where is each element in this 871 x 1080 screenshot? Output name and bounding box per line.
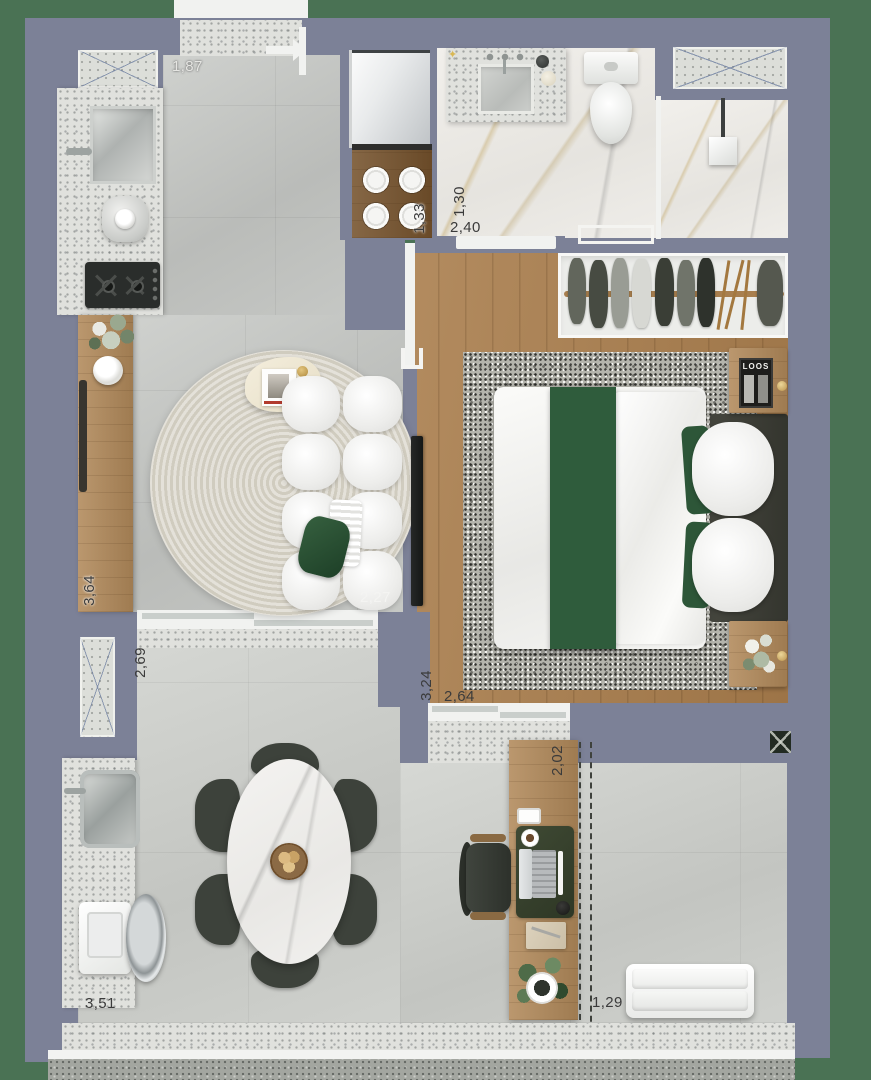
entry-door-leaf-icon — [299, 27, 306, 75]
sofa-cushion — [343, 376, 402, 432]
dim-label: 2,69 — [132, 647, 149, 678]
bed-pillow — [692, 518, 774, 612]
chair-armrest-icon — [470, 912, 506, 920]
shaft-hatch-icon — [80, 637, 115, 737]
window-panel — [500, 712, 566, 718]
bedroom-terrace-door — [428, 703, 570, 721]
burner-icon — [123, 272, 147, 296]
balcony-railing — [48, 1050, 795, 1059]
terrace-faucet-icon — [64, 788, 86, 794]
chair-armrest-icon — [470, 834, 506, 842]
hanging-clothes-icon — [677, 260, 695, 326]
plate-icon — [362, 202, 390, 230]
projection-dashed-line — [579, 742, 581, 1020]
floor-plan: ✦ — [0, 0, 871, 1080]
burner-icon — [92, 270, 120, 298]
door-swing-icon — [401, 348, 423, 369]
balcony-edge-strip — [62, 1023, 795, 1050]
wall-top-bath — [430, 18, 658, 48]
outdoor-walkway — [48, 1059, 795, 1080]
vanity-cup-icon — [541, 71, 556, 86]
terrace-window-sill — [137, 629, 378, 648]
shower-glass-partition — [656, 96, 661, 239]
kitchen-floor — [163, 55, 345, 330]
washer-door-ring-icon — [126, 894, 166, 982]
kitchen-sink — [90, 106, 156, 184]
shaft-hatch-icon — [78, 50, 158, 88]
hanging-clothes-icon — [757, 260, 783, 326]
ac-unit-panel — [632, 991, 748, 1011]
kitchen-faucet-icon — [66, 148, 92, 155]
wall-right-bottom — [787, 763, 830, 1058]
dim-label: 2,27 — [360, 589, 391, 606]
sofa-cushion — [282, 434, 340, 490]
wall-kitchen-hall — [345, 238, 405, 330]
hanging-clothes-icon — [611, 258, 629, 328]
laptop-screen — [519, 849, 532, 899]
cooktop — [85, 262, 160, 308]
hanging-clothes-icon — [568, 258, 586, 324]
coffee-cup-icon — [521, 829, 539, 847]
pen-icon — [558, 851, 563, 895]
dim-label: 3,64 — [81, 575, 98, 606]
bed-runner-green — [550, 387, 616, 649]
tv — [411, 436, 423, 606]
coffee-cup-icon — [115, 209, 135, 229]
plate-icon — [398, 166, 426, 194]
plant-pot — [526, 972, 558, 1004]
shower-arm-icon — [721, 98, 725, 140]
dim-label: 1,33 — [411, 203, 428, 234]
column-marker-icon — [770, 731, 791, 753]
terrace-sink — [80, 770, 140, 848]
dim-label: 1,29 — [592, 994, 623, 1011]
knob-icon — [777, 651, 787, 661]
cooktop-knobs-icon — [151, 267, 159, 303]
sparkle-icon: ✦ — [448, 48, 457, 61]
window-panel — [142, 613, 254, 619]
dim-label: 2,64 — [444, 688, 475, 705]
magazine-loos: LOOS — [739, 358, 773, 408]
soap-dispenser-icon — [536, 55, 549, 68]
washer-lid — [87, 912, 123, 958]
office-chair — [466, 843, 511, 913]
dim-label: 3,24 — [418, 670, 435, 701]
laptop-keyboard — [532, 850, 556, 898]
bathroom-door — [456, 236, 556, 249]
sofa-cushion — [343, 434, 402, 490]
sideboard-tray — [79, 380, 87, 492]
sofa-cushion — [282, 376, 340, 432]
plant-icon — [82, 308, 140, 360]
bed-pillow — [692, 422, 774, 516]
hanging-clothes-icon — [697, 258, 715, 327]
plate-icon — [362, 166, 390, 194]
mouse-icon — [556, 901, 570, 915]
fruit-bowl — [270, 843, 308, 880]
vanity-sink — [478, 64, 534, 114]
ac-unit-panel — [632, 969, 748, 989]
bath-mat — [578, 225, 654, 244]
dim-label: 1,30 — [451, 186, 468, 217]
shaft-hatch-icon — [673, 47, 787, 89]
flower-bouquet-icon — [736, 626, 782, 684]
magazine-cover-figures — [758, 375, 768, 403]
dim-label: 2,40 — [450, 219, 481, 236]
dim-label: 3,51 — [85, 995, 116, 1012]
entry-door-icon — [266, 46, 296, 54]
dim-label: 1,87 — [172, 58, 203, 75]
window-panel — [432, 706, 498, 712]
knob-icon — [777, 381, 787, 391]
refrigerator — [349, 50, 430, 148]
window-panel — [254, 620, 373, 626]
hanging-clothes-icon — [632, 259, 651, 328]
hanging-clothes-icon — [655, 258, 674, 326]
shower-head-icon — [709, 137, 737, 165]
smartphone — [517, 808, 541, 824]
hanging-clothes-icon — [589, 260, 608, 328]
toilet-flush-button — [604, 62, 618, 71]
dim-label: 2,02 — [549, 745, 566, 776]
faucet-spout-icon — [503, 60, 506, 74]
magazine-title: LOOS — [739, 362, 773, 371]
magazine-cover-figures — [744, 375, 754, 403]
wall-right — [788, 95, 830, 763]
decor-bowl — [93, 356, 123, 385]
